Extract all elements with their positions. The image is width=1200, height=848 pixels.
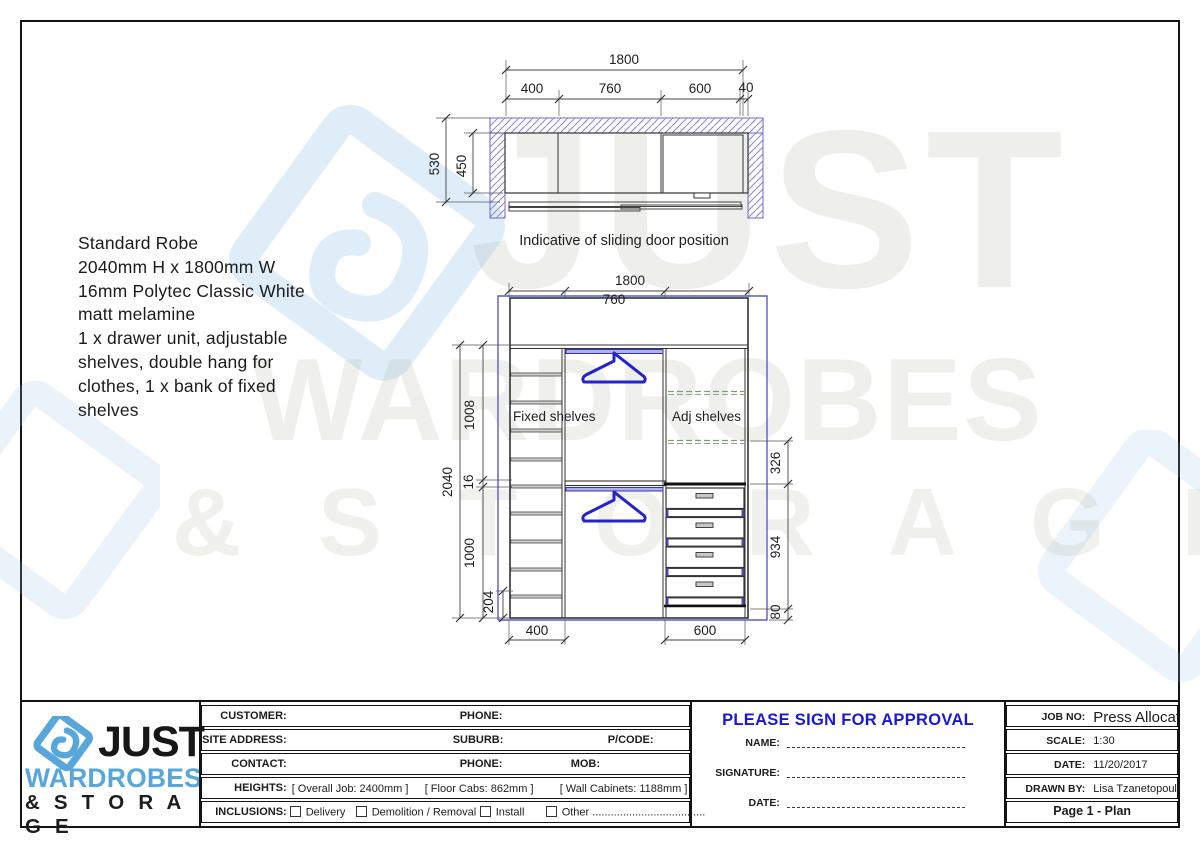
signature-label: SIGNATURE: [692, 767, 780, 779]
inclusion-delivery: Delivery [290, 806, 346, 819]
heights-row: HEIGHTS: [ Overall Job: 2400mm ] [ Floor… [201, 777, 690, 799]
install-checkbox [480, 806, 491, 817]
plan-dim-600: 600 [689, 81, 712, 96]
page-label: Page 1 - Plan [1053, 804, 1131, 818]
logo-cell: JUST WARDROBES & S T O R A G E [22, 702, 199, 826]
customer-label: CUSTOMER: [202, 710, 287, 722]
customer-info-cell: CUSTOMER: PHONE: SITE ADDRESS: SUBURB: P… [199, 702, 690, 826]
job-no-label: JOB NO: [1013, 711, 1085, 723]
approval-cell: PLEASE SIGN FOR APPROVAL NAME: SIGNATURE… [690, 702, 1004, 826]
elev-dim-b600: 600 [694, 623, 717, 638]
plan-sliding-doors [509, 202, 742, 211]
elev-dim-326: 326 [768, 452, 783, 475]
inclusions-row: INCLUSIONS: Delivery Demolition / Remova… [201, 801, 690, 823]
description-line: Standard Robe [78, 232, 305, 256]
demolition-checkbox [356, 806, 367, 817]
site-address-label: SITE ADDRESS: [202, 734, 287, 746]
inclusion-demolition: Demolition / Removal [356, 806, 477, 819]
contact-label: CONTACT: [202, 758, 287, 770]
drawer-unit [664, 484, 746, 606]
info-date-label: DATE: [1013, 759, 1085, 771]
heights-wall-cabinets: [ Wall Cabinets: 1188mm ] [560, 783, 688, 795]
hanging-rail-mid [566, 488, 663, 492]
approval-signature-row: SIGNATURE: [692, 765, 1004, 781]
description-line: shelves, double hang for [78, 351, 305, 375]
info-date-value: 11/20/2017 [1093, 759, 1177, 771]
logo-word-just: JUST [98, 718, 204, 767]
plan-dim-400: 400 [521, 81, 544, 96]
plan-dim-450: 450 [454, 155, 469, 178]
suburb-label: SUBURB: [453, 734, 504, 746]
elev-dim-204: 204 [481, 590, 496, 613]
fixed-shelves [511, 373, 562, 598]
scale-row: SCALE: 1:30 [1006, 729, 1178, 751]
approval-date-row: DATE: [692, 795, 1004, 811]
plan-cabinet [505, 133, 748, 198]
plan-dim-530: 530 [427, 153, 442, 176]
heights-floor-cabs: [ Floor Cabs: 862mm ] [425, 783, 534, 795]
elev-dim-b400: 400 [526, 623, 549, 638]
inclusions-label: INCLUSIONS: [202, 806, 287, 818]
other-label: Other ..................................… [562, 807, 706, 819]
plan-dim-40: 40 [738, 80, 753, 95]
elev-dim-934: 934 [768, 535, 783, 558]
date-label: DATE: [692, 797, 780, 809]
approval-name-row: NAME: [692, 735, 1004, 751]
scale-value: 1:30 [1093, 735, 1177, 747]
drawn-by-label: DRAWN BY: [1013, 783, 1085, 795]
elev-dim-1008: 1008 [462, 400, 477, 430]
plan-caption: Indicative of sliding door position [519, 233, 729, 249]
plan-view: 1800 400 760 600 40 530 450 Indicative o… [427, 52, 763, 249]
heights-overall-job: [ Overall Job: 2400mm ] [292, 783, 409, 795]
elevation-view: Fixed shelves Adj shelves [440, 273, 793, 645]
mob-label: MOB: [571, 758, 600, 770]
other-checkbox [546, 806, 557, 817]
plan-dim-760: 760 [599, 81, 622, 96]
phone-label: PHONE: [460, 710, 503, 722]
heights-label: HEIGHTS: [202, 782, 287, 794]
logo-word-wardrobes: WARDROBES [25, 763, 202, 794]
description-line: 1 x drawer unit, adjustable [78, 327, 305, 351]
delivery-label: Delivery [306, 807, 346, 819]
job-no-value: Press Allocate to a [1093, 709, 1177, 726]
description-line: 16mm Polytec Classic White [78, 280, 305, 304]
label-fixed-shelves: Fixed shelves [513, 409, 596, 424]
job-info-cell: JOB NO: Press Allocate to a SCALE: 1:30 … [1004, 702, 1178, 826]
description-line: matt melamine [78, 303, 305, 327]
hanger-icon [583, 353, 645, 382]
logo-word-storage: & S T O R A G E [25, 791, 199, 839]
date-line [787, 795, 965, 808]
demolition-label: Demolition / Removal [372, 807, 477, 819]
site-address-row: SITE ADDRESS: SUBURB: P/CODE: [201, 729, 690, 751]
scale-label: SCALE: [1013, 735, 1085, 747]
customer-row: CUSTOMER: PHONE: [201, 705, 690, 727]
description-line: clothes, 1 x bank of fixed [78, 375, 305, 399]
elev-dim-2040: 2040 [440, 467, 455, 497]
elev-dim-1800: 1800 [615, 273, 645, 288]
date-row: DATE: 11/20/2017 [1006, 753, 1178, 775]
mid-shelf [565, 481, 665, 486]
plan-dim-1800: 1800 [609, 52, 639, 67]
pcode-label: P/CODE: [608, 734, 654, 746]
drawing-sheet: JUST WARDROBES & S T O R A G E [0, 0, 1200, 848]
job-no-row: JOB NO: Press Allocate to a [1006, 705, 1178, 727]
drawn-by-row: DRAWN BY: Lisa Tzanetopoulos [1006, 777, 1178, 799]
description-line: shelves [78, 399, 305, 423]
elev-dim-760: 760 [603, 292, 626, 307]
label-adj-shelves: Adj shelves [672, 409, 741, 424]
page-indicator: Page 1 - Plan [1006, 801, 1178, 823]
approval-heading: PLEASE SIGN FOR APPROVAL [692, 711, 1004, 730]
name-signature-line [787, 735, 965, 748]
delivery-checkbox [290, 806, 301, 817]
name-label: NAME: [692, 737, 780, 749]
phone2-label: PHONE: [460, 758, 503, 770]
contact-row: CONTACT: PHONE: MOB: [201, 753, 690, 775]
install-label: Install [496, 807, 525, 819]
elev-dim-80: 80 [768, 604, 783, 619]
inclusion-other: Other ..................................… [546, 806, 706, 819]
description-line: 2040mm H x 1800mm W [78, 256, 305, 280]
hanger-icon [583, 492, 645, 521]
drawn-by-value: Lisa Tzanetopoulos [1093, 783, 1177, 795]
signature-line [787, 765, 965, 778]
elevation-dim-ticks [456, 287, 792, 644]
robe-description: Standard Robe 2040mm H x 1800mm W 16mm P… [78, 232, 305, 422]
title-block: JUST WARDROBES & S T O R A G E CUSTOMER:… [20, 700, 1180, 828]
elev-dim-16: 16 [461, 474, 476, 489]
inclusion-install: Install [480, 806, 525, 819]
elev-dim-1000: 1000 [462, 538, 477, 568]
